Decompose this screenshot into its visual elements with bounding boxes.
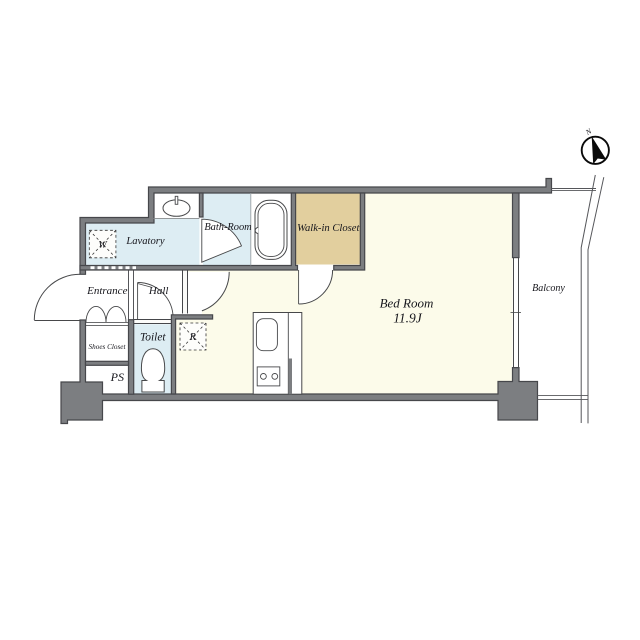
svg-text:Lavatory: Lavatory	[125, 236, 165, 247]
svg-text:Bed Room: Bed Room	[380, 296, 434, 311]
svg-text:Hall: Hall	[148, 285, 169, 297]
svg-text:Bath-Room: Bath-Room	[204, 222, 252, 233]
svg-text:Entrance: Entrance	[86, 285, 127, 297]
svg-text:Balcony: Balcony	[532, 283, 565, 294]
svg-text:Toilet: Toilet	[140, 331, 166, 343]
svg-text:Shoes Closet: Shoes Closet	[89, 343, 127, 351]
svg-text:PS: PS	[110, 370, 124, 384]
svg-text:Walk-in Closet: Walk-in Closet	[297, 223, 360, 234]
svg-text:R: R	[189, 332, 196, 343]
svg-text:11.9J: 11.9J	[393, 311, 423, 326]
